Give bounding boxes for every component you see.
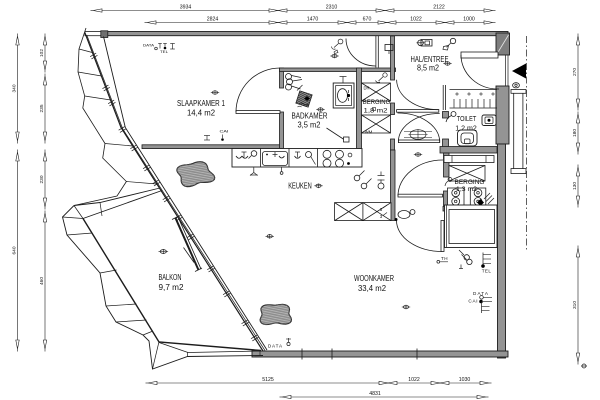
svg-text:5125: 5125 bbox=[262, 377, 274, 383]
svg-text:DATA: DATA bbox=[268, 344, 283, 349]
svg-text:3,5 m2: 3,5 m2 bbox=[298, 121, 322, 130]
svg-text:1470: 1470 bbox=[307, 17, 319, 23]
svg-text:KEUKEN: KEUKEN bbox=[288, 182, 312, 191]
svg-text:460: 460 bbox=[39, 277, 45, 285]
svg-text:235: 235 bbox=[39, 104, 45, 112]
svg-text:102: 102 bbox=[39, 49, 45, 57]
svg-text:1,3 m2: 1,3 m2 bbox=[456, 186, 477, 193]
svg-text:WM: WM bbox=[365, 130, 373, 135]
svg-text:TH: TH bbox=[441, 256, 448, 261]
svg-text:8,5 m2: 8,5 m2 bbox=[417, 64, 439, 73]
svg-text:2824: 2824 bbox=[207, 17, 219, 23]
svg-text:130: 130 bbox=[572, 182, 578, 190]
svg-text:180: 180 bbox=[572, 129, 578, 137]
svg-text:310: 310 bbox=[572, 301, 578, 309]
svg-text:670: 670 bbox=[363, 17, 372, 23]
svg-text:BADKAMER: BADKAMER bbox=[292, 112, 328, 121]
svg-text:1022: 1022 bbox=[408, 377, 420, 383]
svg-text:BERGING: BERGING bbox=[455, 179, 485, 186]
svg-text:230: 230 bbox=[39, 175, 45, 183]
svg-text:CAI: CAI bbox=[220, 129, 229, 134]
svg-text:4831: 4831 bbox=[369, 391, 381, 397]
svg-text:9,7 m2: 9,7 m2 bbox=[159, 283, 184, 292]
svg-text:2122: 2122 bbox=[433, 5, 445, 11]
svg-text:SLAAPKAMER 1: SLAAPKAMER 1 bbox=[177, 99, 225, 108]
svg-text:TEL: TEL bbox=[160, 49, 169, 54]
svg-text:3934: 3934 bbox=[180, 5, 192, 11]
svg-text:2310: 2310 bbox=[326, 5, 338, 11]
svg-text:33,4 m2: 33,4 m2 bbox=[358, 284, 387, 293]
svg-text:1030: 1030 bbox=[459, 377, 471, 383]
svg-text:TEL: TEL bbox=[482, 269, 492, 274]
svg-text:DR: DR bbox=[363, 86, 369, 91]
svg-text:640: 640 bbox=[12, 246, 18, 254]
svg-text:BALKON: BALKON bbox=[159, 273, 182, 282]
svg-text:TOILET: TOILET bbox=[457, 114, 477, 123]
svg-text:CAI: CAI bbox=[468, 298, 478, 303]
svg-text:BERGING: BERGING bbox=[363, 99, 391, 106]
svg-text:340: 340 bbox=[12, 84, 18, 92]
svg-text:270: 270 bbox=[572, 68, 578, 76]
svg-text:WOONKAMER: WOONKAMER bbox=[354, 274, 394, 283]
svg-text:1000: 1000 bbox=[463, 17, 475, 23]
svg-text:14,4 m2: 14,4 m2 bbox=[187, 109, 216, 118]
svg-text:DATA: DATA bbox=[143, 43, 154, 48]
svg-text:1022: 1022 bbox=[410, 17, 422, 23]
